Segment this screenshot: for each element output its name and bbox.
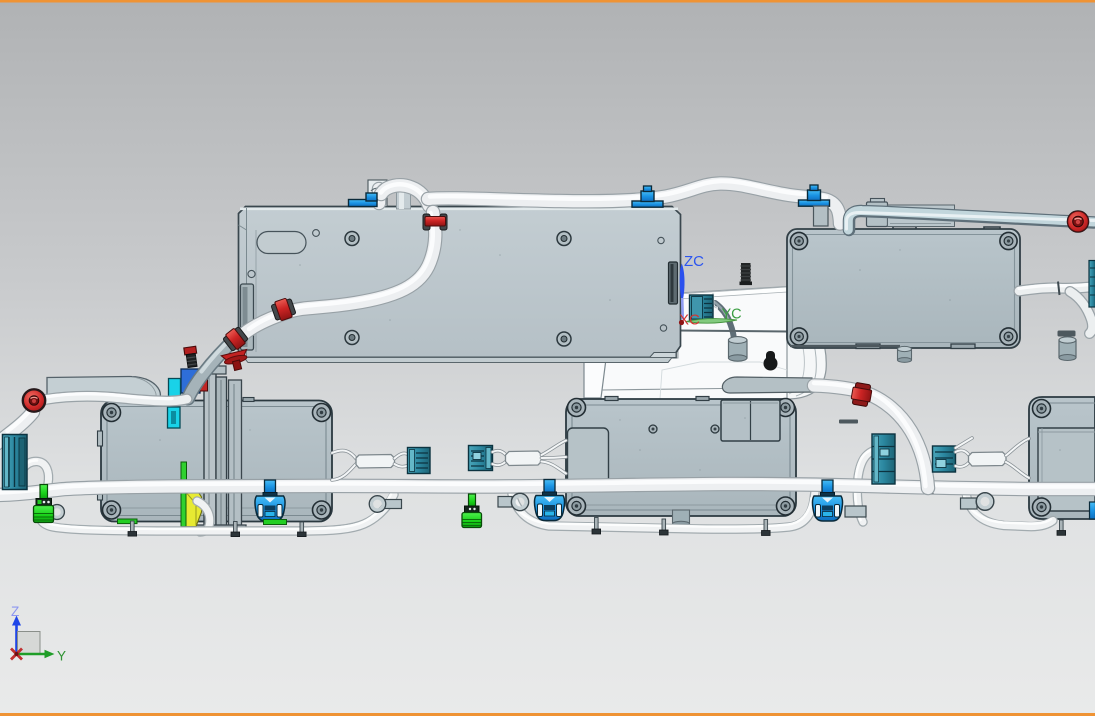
svg-text:YC: YC (722, 307, 742, 323)
svg-text:Y: Y (57, 649, 66, 664)
svg-text:Z: Z (11, 604, 19, 619)
svg-text:ZC: ZC (684, 253, 704, 270)
